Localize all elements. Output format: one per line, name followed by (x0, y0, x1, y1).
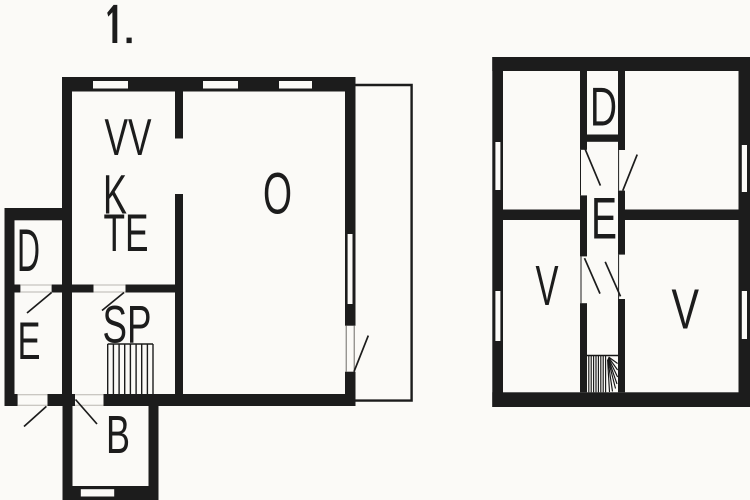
svg-text:B: B (106, 405, 130, 465)
svg-text:O: O (263, 162, 292, 227)
svg-text:SP: SP (103, 296, 152, 355)
svg-text:VV: VV (105, 109, 152, 167)
svg-text:TE: TE (104, 204, 149, 263)
svg-text:D: D (590, 75, 617, 137)
svg-text:E: E (591, 187, 617, 252)
svg-text:E: E (18, 312, 41, 371)
svg-text:V: V (672, 277, 700, 341)
svg-text:D: D (17, 217, 40, 284)
svg-text:V: V (536, 254, 559, 318)
